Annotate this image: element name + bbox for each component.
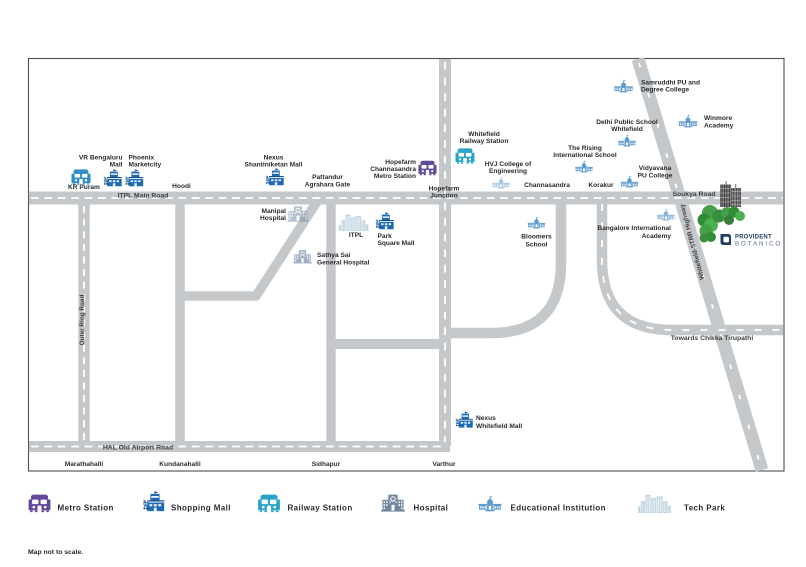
svg-text:Samruddhi PU and: Samruddhi PU and — [641, 80, 700, 87]
svg-text:Kundanahalli: Kundanahalli — [159, 461, 201, 468]
svg-text:Vidyavana: Vidyavana — [639, 165, 672, 172]
svg-text:Agrahara Gate: Agrahara Gate — [305, 182, 351, 189]
svg-text:Marathahalli: Marathahalli — [65, 461, 104, 468]
svg-text:Educational Institution: Educational Institution — [511, 504, 606, 513]
svg-text:Bloomers: Bloomers — [521, 234, 552, 241]
svg-text:Pattandur: Pattandur — [312, 174, 343, 181]
svg-text:Whitefield: Whitefield — [468, 131, 500, 138]
svg-text:Degree College: Degree College — [641, 87, 689, 94]
svg-text:Railway Station: Railway Station — [288, 504, 353, 513]
svg-text:Whitefield: Whitefield — [611, 126, 643, 133]
svg-text:HAL Old Airport Road: HAL Old Airport Road — [103, 445, 173, 452]
svg-text:Nexus: Nexus — [476, 415, 496, 422]
svg-text:BOTANICO: BOTANICO — [735, 241, 782, 248]
svg-text:Metro Station: Metro Station — [58, 504, 114, 513]
svg-text:Hospital: Hospital — [260, 215, 286, 222]
svg-text:Engineering: Engineering — [489, 168, 527, 175]
svg-text:Hospital: Hospital — [414, 504, 449, 513]
svg-text:Metro Station: Metro Station — [374, 173, 416, 180]
svg-text:Bangalore International: Bangalore International — [597, 225, 671, 232]
svg-text:Hoodi: Hoodi — [172, 183, 191, 190]
svg-text:Hopefarm: Hopefarm — [429, 186, 460, 193]
svg-text:Phoenix: Phoenix — [129, 155, 155, 162]
svg-text:International School: International School — [553, 152, 617, 159]
svg-text:Square Mall: Square Mall — [378, 240, 415, 247]
svg-text:Sidhapur: Sidhapur — [312, 461, 341, 468]
svg-text:VR Bengaluru: VR Bengaluru — [79, 155, 123, 162]
svg-text:Map not to scale.: Map not to scale. — [28, 549, 83, 556]
svg-text:Varthur: Varthur — [432, 461, 456, 468]
svg-text:Sathya Sai: Sathya Sai — [317, 252, 351, 259]
svg-text:Delhi Public School: Delhi Public School — [596, 119, 658, 126]
svg-text:Park: Park — [378, 233, 393, 240]
svg-text:Soukya Road: Soukya Road — [672, 191, 715, 198]
svg-text:Outer Ring Road: Outer Ring Road — [79, 295, 86, 346]
svg-text:Shopping Mall: Shopping Mall — [171, 504, 231, 513]
svg-text:Marketcity: Marketcity — [129, 162, 162, 169]
svg-text:School: School — [526, 242, 548, 249]
svg-text:Tech Park: Tech Park — [684, 504, 725, 513]
svg-text:PROVIDENT: PROVIDENT — [735, 235, 772, 241]
svg-text:ITPL: ITPL — [349, 232, 363, 239]
svg-text:General Hospital: General Hospital — [317, 260, 370, 267]
svg-text:Whitefield Mall: Whitefield Mall — [476, 423, 522, 430]
svg-text:PU College: PU College — [638, 173, 673, 180]
svg-text:Railway Station: Railway Station — [460, 138, 509, 145]
svg-text:Manipal: Manipal — [261, 208, 286, 215]
svg-text:Towards Chikka Tirupathi: Towards Chikka Tirupathi — [671, 335, 754, 342]
svg-text:Channasandra: Channasandra — [524, 182, 570, 189]
svg-text:Hopefarm: Hopefarm — [385, 159, 416, 166]
svg-text:Korakur: Korakur — [588, 182, 614, 189]
svg-text:Shantiniketan Mall: Shantiniketan Mall — [245, 162, 303, 169]
svg-text:Mall: Mall — [110, 162, 123, 169]
svg-text:HVJ College of: HVJ College of — [485, 161, 532, 168]
svg-text:Channasandra: Channasandra — [370, 166, 416, 173]
svg-text:ITPL Main Road: ITPL Main Road — [118, 193, 169, 200]
svg-text:Nexus: Nexus — [264, 155, 284, 162]
svg-text:The Rising: The Rising — [568, 145, 602, 152]
svg-text:Academy: Academy — [642, 233, 672, 240]
svg-text:Academy: Academy — [704, 123, 734, 130]
svg-text:Winmore: Winmore — [704, 115, 732, 122]
svg-text:Junction: Junction — [430, 193, 457, 200]
svg-text:KR Puram: KR Puram — [68, 184, 100, 191]
